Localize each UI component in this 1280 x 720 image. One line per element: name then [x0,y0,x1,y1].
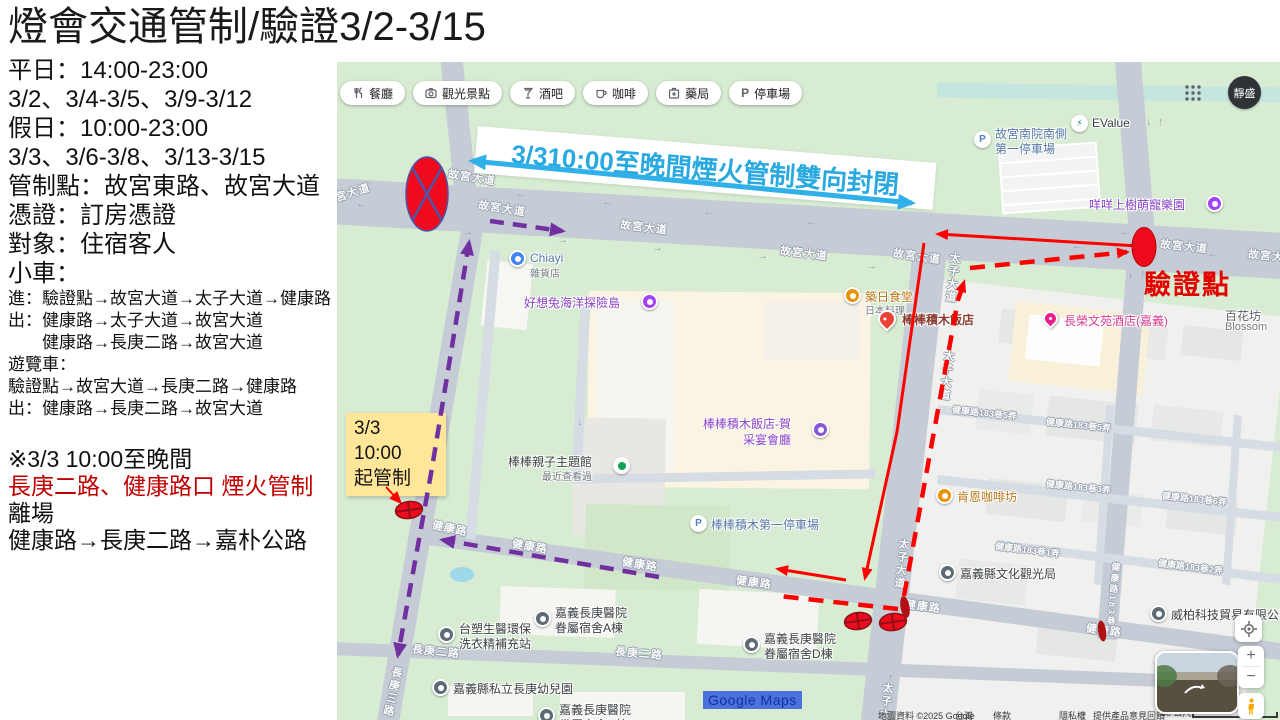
pegman-button[interactable] [1238,693,1264,719]
info-line: 假日：10:00-23:00 [8,114,356,143]
poi-label: 嘉義縣文化觀光局 [960,565,1056,582]
info-line: 出：健康路→太子大道→故宮大道 [8,310,356,332]
poi-label: 長榮文苑酒店(嘉義) [1064,312,1168,329]
attribution-region[interactable]: 台灣 [955,709,973,720]
pegman-icon [1246,698,1257,715]
coffee-icon [595,87,607,99]
poi-sub: 最近查看過 [542,468,592,483]
chip-label: 咖啡 [612,85,636,102]
poi-label: 棒棒積木飯店-賀 [703,415,791,432]
saved-place-icon [613,457,630,474]
info-line: 健康路→長庚二路→嘉朴公路 [8,527,356,554]
hospital-dorm-icon [743,636,760,653]
pond [450,567,474,582]
info-line-firework-control: 長庚二路、健康路口 煙火管制 [8,473,356,500]
info-panel: 燈會交通管制/驗證3/2-3/15 平日：14:00-23:00 3/2、3/4… [0,0,340,720]
control-start-note: 3/3 10:00 起管制 [346,413,446,496]
info-line: 出：健康路→長庚二路→故宮大道 [8,398,356,420]
info-line: 管制點：故宮東路、故宮大道 [8,172,356,201]
crosshair-icon [1241,621,1257,637]
lane-arrow: ← [1207,248,1218,260]
info-line: 3/3、3/6-3/8、3/13-3/15 [8,143,356,172]
banquet-icon [812,421,829,438]
store-icon [438,626,455,643]
page-title: 燈會交通管制/驗證3/2-3/15 [8,2,486,52]
poi-label: 棒棒積木飯店 [902,311,974,328]
note-line: 起管制 [354,466,440,491]
zoom-control: + − [1238,646,1264,688]
attribution-privacy[interactable]: 隱私權 [1059,709,1086,720]
restaurant-icon [844,287,861,304]
poi-sub: 第一停車場 [995,140,1055,157]
poi-label: 威柏科技貿易有限公司 [1171,606,1280,623]
attribution-feedback[interactable]: 提供產品意見回饋 [1093,709,1165,720]
poi-label: 肯恩咖啡坊 [957,488,1017,505]
lane-arrow: ← [602,196,613,208]
info-line: 憑證：訂房憑證 [8,201,356,230]
lane-arrow: ← [1120,226,1131,238]
poi-label: 咩咩上樹萌寵樂園 [1089,196,1185,213]
store-icon [509,250,526,267]
account-avatar[interactable]: 靜盛 [1228,76,1261,109]
lane-arrow: ↓ [577,416,583,428]
poi-label: 好想兔海洋探險島 [524,294,620,311]
curved-arrow-icon [1183,683,1205,695]
chip-label: 酒吧 [539,85,563,102]
lane-arrow: ↓ [1128,268,1134,280]
poi-label: 棒棒積木第一停車場 [711,516,819,533]
company-icon [1150,605,1167,622]
lane-arrow: ← [356,198,367,210]
note-line: 10:00 [354,441,440,466]
lane-arrow: → [462,226,473,238]
attribution-terms[interactable]: 條款 [993,709,1011,720]
poi-sub: 眷屬宿舍A棟 [555,619,623,636]
zoom-in-button[interactable]: + [1238,646,1264,666]
info-line: 健康路→長庚二路→故宮大道 [8,332,356,354]
my-location-button[interactable] [1235,615,1262,642]
chip-coffee[interactable]: 咖啡 [583,81,648,105]
apps-grid-icon[interactable] [1184,84,1202,107]
info-line: 對象：住宿客人 [8,230,356,259]
parking-icon: P [974,131,991,148]
hospital-dorm-icon [534,610,551,627]
zoom-out-button[interactable]: − [1238,667,1264,687]
info-line: ※3/3 10:00至晚間 [8,446,356,473]
avatar-label: 靜盛 [1234,85,1256,101]
slide: 燈會交通管制/驗證3/2-3/15 平日：14:00-23:00 3/2、3/4… [0,0,1280,720]
parking-icon: P [690,515,707,532]
school-icon [432,679,449,696]
google-maps-watermark: Google Maps [703,691,802,709]
poi-label: EValue [1092,116,1130,130]
info-lines: 平日：14:00-23:00 3/2、3/4-3/5、3/9-3/12 假日：1… [8,56,356,554]
hospital-dorm-icon [538,707,555,720]
parking-icon: P [741,86,749,100]
poi-sub: 采宴會廳 [743,431,791,448]
chip-label: 藥局 [685,85,709,102]
chip-parking[interactable]: P 停車場 [729,81,802,105]
chip-label: 觀光景點 [442,85,490,102]
poi-sub: 雜貨店 [530,265,560,280]
info-line: 3/2、3/4-3/5、3/9-3/12 [8,85,356,114]
lane-arrow: ← [1072,240,1083,252]
info-line: 小車： [8,259,356,288]
pharmacy-icon [668,87,680,99]
chip-label: 停車場 [754,85,790,102]
lane-arrow: ↑ [1158,116,1164,128]
chip-pharmacy[interactable]: 藥局 [656,81,721,105]
poi-sub: Blossom [1225,321,1267,333]
lane-arrow: → [866,260,877,272]
poi-label: Chiayi [530,251,563,265]
info-line: 驗證點→故宮大道→長庚二路→健康路 [8,376,356,398]
info-line: 離場 [8,500,356,527]
camera-icon [425,87,437,99]
street-view-thumbnail[interactable] [1155,651,1239,714]
lane-arrow: ↓ [1146,116,1152,128]
lane-arrow: → [557,234,568,246]
poi-sub: 眷屬宿舍H棟 [559,716,628,720]
poi-sub: 洗衣精補充站 [459,635,531,652]
info-line: 平日：14:00-23:00 [8,56,356,85]
cafe-icon [936,487,953,504]
cocktail-icon [522,87,534,99]
pet-icon [1206,195,1223,212]
building [765,302,860,360]
chip-label: 餐廳 [369,85,393,102]
lane-arrow: ← [806,216,817,228]
category-chips: 餐廳 觀光景點 酒吧 咖啡 藥局 P 停車場 [340,81,802,105]
checkpoint-label: 驗證點 [1144,263,1231,302]
attraction-icon [641,293,658,310]
government-icon [939,564,956,581]
lane-arrow: ← [703,206,714,218]
chip-attractions[interactable]: 觀光景點 [413,81,502,105]
lane-arrow: → [652,242,663,254]
note-line: 3/3 [354,416,440,441]
poi-label: 嘉義縣私立長庚幼兒園 [453,680,573,697]
info-line: 進：驗證點→故宮大道→太子大道→健康路 [8,288,356,310]
chip-bars[interactable]: 酒吧 [510,81,575,105]
ev-charging-icon: ⚡ [1071,115,1088,132]
poi-sub: 眷屬宿舍D棟 [764,645,833,662]
info-line: 遊覽車： [8,354,356,376]
lane-arrow: ← [515,188,526,200]
tree [1155,665,1177,687]
house [1217,665,1239,687]
lane-arrow: → [757,250,768,262]
